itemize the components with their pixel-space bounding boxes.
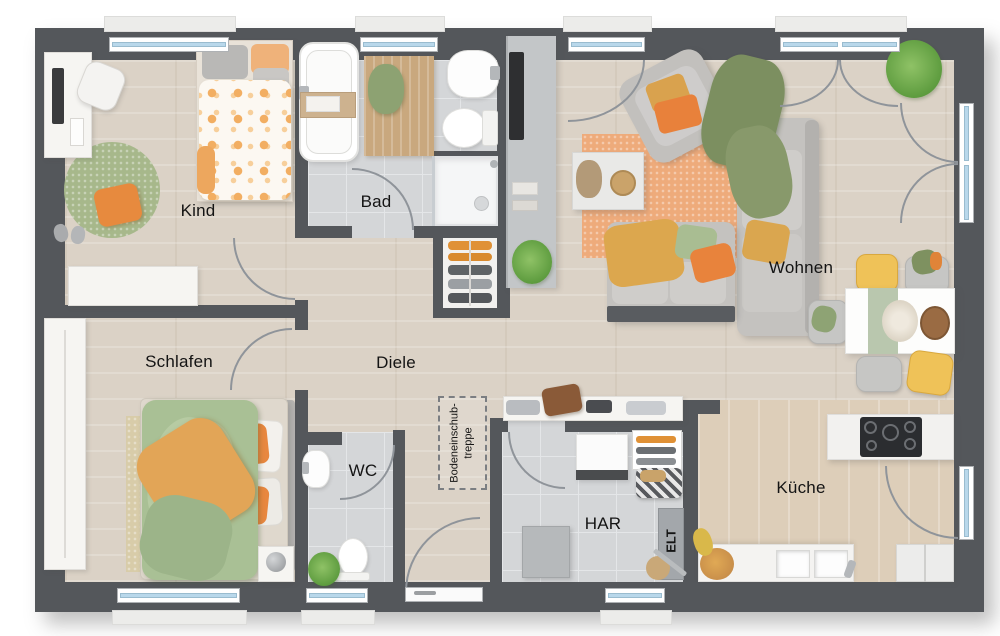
dining-chair-yellow: [905, 349, 954, 397]
wood-bowl: [920, 306, 950, 340]
silver-shoes: [506, 400, 540, 415]
burner: [904, 421, 916, 433]
decor-sphere: [266, 552, 286, 572]
sill: [112, 610, 247, 625]
label-wc: WC: [349, 461, 378, 481]
sill: [301, 610, 375, 625]
wall-har-kueche: [683, 400, 698, 582]
burner: [904, 438, 916, 450]
dining-chair-gray: [856, 356, 902, 392]
window-glass: [783, 42, 838, 47]
window-glass: [608, 593, 662, 598]
wc-toilet-bowl: [338, 538, 368, 576]
wall-wc-right: [393, 430, 405, 582]
sill: [563, 16, 652, 32]
terrace-door-kueche: [959, 466, 974, 540]
sofa-base: [607, 306, 735, 322]
sill: [355, 16, 445, 32]
window-glass: [842, 42, 897, 47]
label-diele: Diele: [376, 353, 416, 373]
rack-shoes-gray: [636, 458, 676, 465]
window-glass: [964, 106, 969, 161]
bath-towels: [306, 96, 340, 112]
burner: [864, 421, 877, 434]
sill: [600, 610, 672, 625]
sink-tap: [490, 66, 500, 80]
window-har: [605, 588, 665, 603]
wall-kind-schlafen: [65, 305, 296, 318]
wall-har-left: [490, 432, 502, 582]
entrance-door: [405, 587, 483, 602]
label-har: HAR: [585, 514, 622, 534]
burner: [882, 424, 899, 441]
keyboard: [70, 118, 84, 146]
wall-bad-bottom-right: [414, 226, 510, 238]
shower-drain: [474, 196, 489, 211]
label-schlafen: Schlafen: [145, 352, 213, 372]
sill: [104, 16, 236, 32]
dried-plant: [576, 160, 602, 198]
window-glass: [363, 42, 435, 47]
wc-tap: [302, 462, 309, 474]
wc-plant: [308, 552, 340, 586]
label-attic-stairs: Bodeneinschub- treppe: [448, 403, 477, 483]
toilet-bowl: [442, 108, 486, 148]
attic-line2: treppe: [463, 427, 475, 458]
chair-cloth-orange: [930, 252, 942, 270]
terrace-door-2: [780, 37, 900, 52]
washer-front: [576, 470, 628, 480]
attic-line1: Bodeneinschub-: [449, 403, 461, 483]
window-kind: [109, 37, 229, 52]
wall-schlafen-wc: [295, 390, 308, 582]
rack-shoes-dark: [636, 447, 676, 454]
dresser: [68, 266, 198, 306]
books: [512, 182, 538, 195]
window-glass: [309, 593, 365, 598]
closet-divider: [469, 240, 471, 306]
shower-head: [490, 160, 498, 168]
window-bad: [360, 37, 438, 52]
books: [512, 200, 538, 211]
duvet-fold: [197, 146, 215, 194]
door-handle: [414, 591, 436, 595]
wall-kind-jamb: [295, 300, 308, 330]
dining-chair-yellow: [856, 254, 898, 292]
fridge-door-gap: [924, 544, 926, 582]
wc-toilet-tank: [336, 572, 370, 581]
window-wc: [306, 588, 368, 603]
wall-bad-bottom-left: [308, 226, 352, 238]
floor-plan: Kind Bad Wohnen Schlafen Diele WC HAR Kü…: [0, 0, 1000, 636]
french-door-wohnen: [959, 103, 974, 223]
clutch: [586, 400, 612, 413]
toilet-tank: [482, 110, 498, 146]
window-glass: [120, 593, 237, 598]
burner: [866, 440, 877, 451]
wall-wc-top: [308, 432, 342, 445]
terrace-door-1: [568, 37, 645, 52]
label-elt: ELT: [664, 529, 679, 553]
shower-glass: [432, 156, 435, 226]
green-towel: [368, 64, 404, 114]
label-kueche: Küche: [776, 478, 825, 498]
silver-heels: [626, 401, 666, 415]
wardrobe-gap: [64, 330, 66, 558]
window-glass: [964, 165, 969, 220]
flower-centerpiece: [882, 300, 918, 342]
shelf-plant: [512, 240, 552, 284]
rack-shoes-orange: [636, 436, 676, 443]
window-glass: [964, 469, 969, 537]
label-kind: Kind: [181, 201, 216, 221]
wall-kueche-stub: [683, 400, 720, 414]
storage-box: [522, 526, 570, 578]
monitor: [52, 68, 64, 124]
tray: [610, 170, 636, 196]
label-bad: Bad: [361, 192, 392, 212]
sill: [775, 16, 907, 32]
window-glass: [571, 42, 642, 47]
basket-contents: [640, 470, 666, 482]
label-wohnen: Wohnen: [769, 258, 833, 278]
kitchen-sink: [776, 550, 810, 578]
window-glass: [112, 42, 226, 47]
yellow-blanket: [602, 217, 686, 289]
tv: [509, 52, 524, 140]
shower-tray: [432, 156, 498, 226]
window-schlafen: [117, 588, 240, 603]
